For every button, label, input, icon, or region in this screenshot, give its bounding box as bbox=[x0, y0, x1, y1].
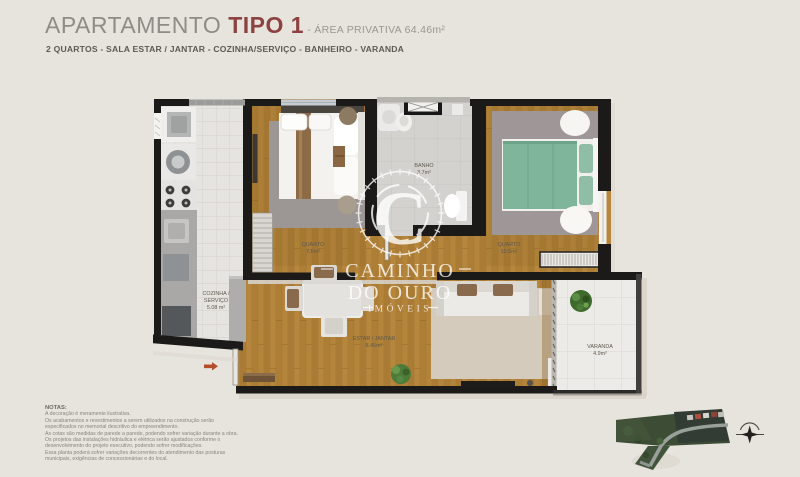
svg-text:5.08 m²: 5.08 m² bbox=[207, 305, 225, 311]
svg-text:4.9m²: 4.9m² bbox=[593, 351, 607, 357]
svg-text:BANHO: BANHO bbox=[414, 163, 433, 169]
svg-text:7.5m²: 7.5m² bbox=[306, 249, 320, 255]
svg-text:VARANDA: VARANDA bbox=[587, 344, 613, 350]
svg-text:COZINHA /: COZINHA / bbox=[203, 291, 230, 297]
svg-text:ESTAR / JANTAR: ESTAR / JANTAR bbox=[353, 336, 396, 342]
svg-text:QUARTO: QUARTO bbox=[498, 242, 521, 248]
svg-text:IMÓVEIS: IMÓVEIS bbox=[368, 303, 432, 315]
svg-text:CAMINHO: CAMINHO bbox=[345, 260, 455, 282]
svg-text:QUARTO: QUARTO bbox=[302, 242, 325, 248]
svg-text:SERVIÇO: SERVIÇO bbox=[204, 298, 228, 304]
svg-text:DO OURO: DO OURO bbox=[348, 282, 453, 304]
svg-text:C: C bbox=[373, 177, 428, 261]
svg-text:8.45m²: 8.45m² bbox=[366, 343, 383, 349]
svg-text:10.5m²: 10.5m² bbox=[501, 249, 518, 255]
